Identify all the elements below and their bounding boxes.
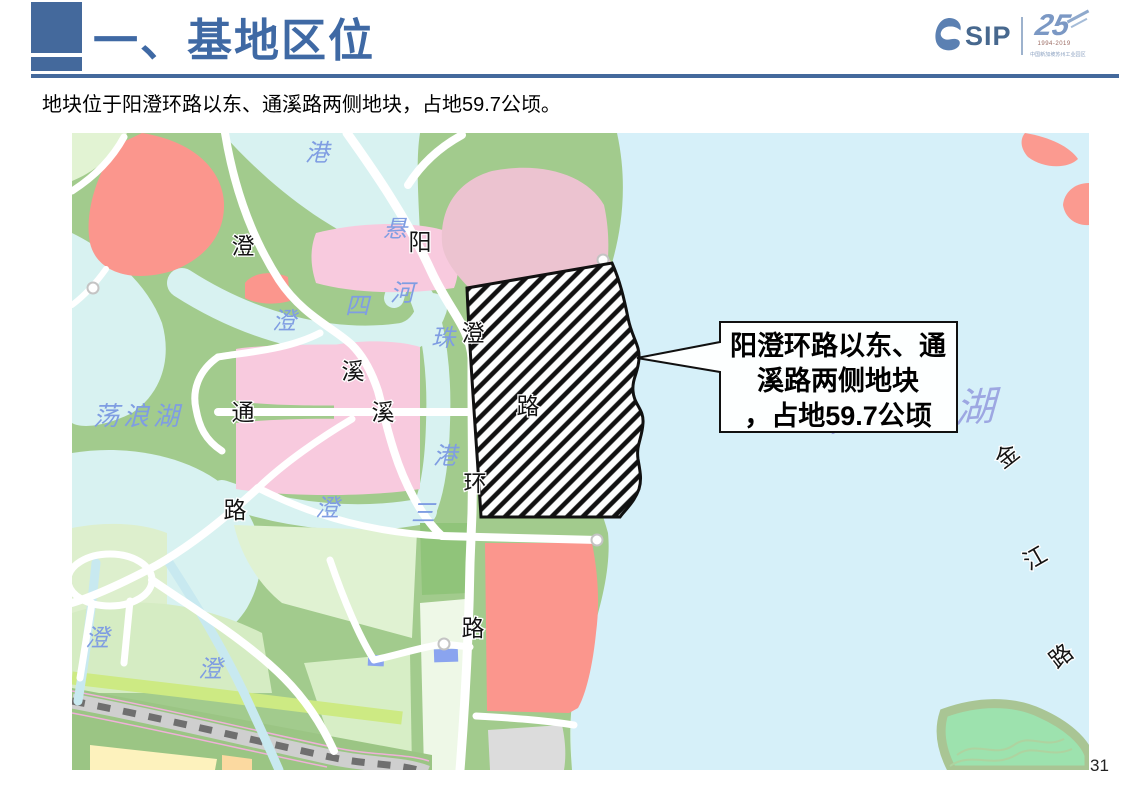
header-divider: [31, 74, 1119, 78]
road-label: 阳: [409, 229, 432, 255]
water-label: 四: [345, 292, 372, 320]
site-location-map: 阳澄东湖 澄 阳 澄 路 溪 通 溪 路 环 路 金 江 路 港 悬: [72, 133, 1089, 770]
road-label: 溪: [342, 358, 365, 384]
sip-swoosh-icon: [933, 14, 963, 59]
anniversary-org: 中国新加坡苏州工业园区: [1030, 50, 1086, 57]
water-label: 澄: [315, 494, 343, 522]
water-label: 河: [390, 279, 418, 307]
water-label: 珠: [431, 324, 457, 352]
logo-divider: [1021, 17, 1023, 55]
callout-line1: 阳澄环路以东、通: [730, 330, 946, 361]
anniversary-years: 1994-2019: [1038, 41, 1071, 47]
road-label: 澄: [462, 320, 485, 346]
road-label: 澄: [232, 233, 255, 259]
road-label: 路: [224, 497, 247, 523]
water-label: 澄: [198, 655, 226, 683]
anniversary-logo: 25 1994-2019 中国新加坡苏州工业园区: [1030, 13, 1092, 59]
water-label: 悬: [383, 215, 409, 243]
callout-line3: ，占地59.7公顷: [744, 401, 932, 431]
anniversary-number: 25: [1032, 9, 1073, 43]
water-label: 澄: [85, 624, 113, 652]
water-label: 港: [433, 442, 460, 470]
sip-logo-text: SIP: [965, 21, 1012, 52]
road-label: 环: [464, 470, 487, 496]
header-accent-square: [31, 2, 82, 53]
road-label: 路: [462, 615, 485, 641]
road-label: 路: [517, 393, 540, 419]
building: [434, 649, 458, 663]
water-label: 三: [411, 499, 437, 527]
page-number: 31: [1090, 756, 1109, 776]
water-label: 港: [305, 139, 332, 167]
lake-label: 荡浪湖: [93, 402, 183, 432]
road-label: 溪: [372, 399, 395, 425]
slide: 一、基地区位 SIP 25 1994-2019 中国新加坡苏州工业园区 地块位于…: [0, 0, 1123, 794]
road-label: 通: [232, 399, 255, 425]
page-title: 一、基地区位: [93, 4, 375, 69]
slide-subtitle: 地块位于阳澄环路以东、通溪路两侧地块，占地59.7公顷。: [42, 88, 561, 117]
header-accent-bar: [31, 57, 82, 71]
callout-line2: 溪路两侧地块: [757, 365, 920, 396]
sip-logo: SIP 25 1994-2019 中国新加坡苏州工业园区: [933, 12, 1092, 60]
site-boundary-polygon: [467, 263, 643, 517]
water-label: 澄: [272, 307, 300, 335]
